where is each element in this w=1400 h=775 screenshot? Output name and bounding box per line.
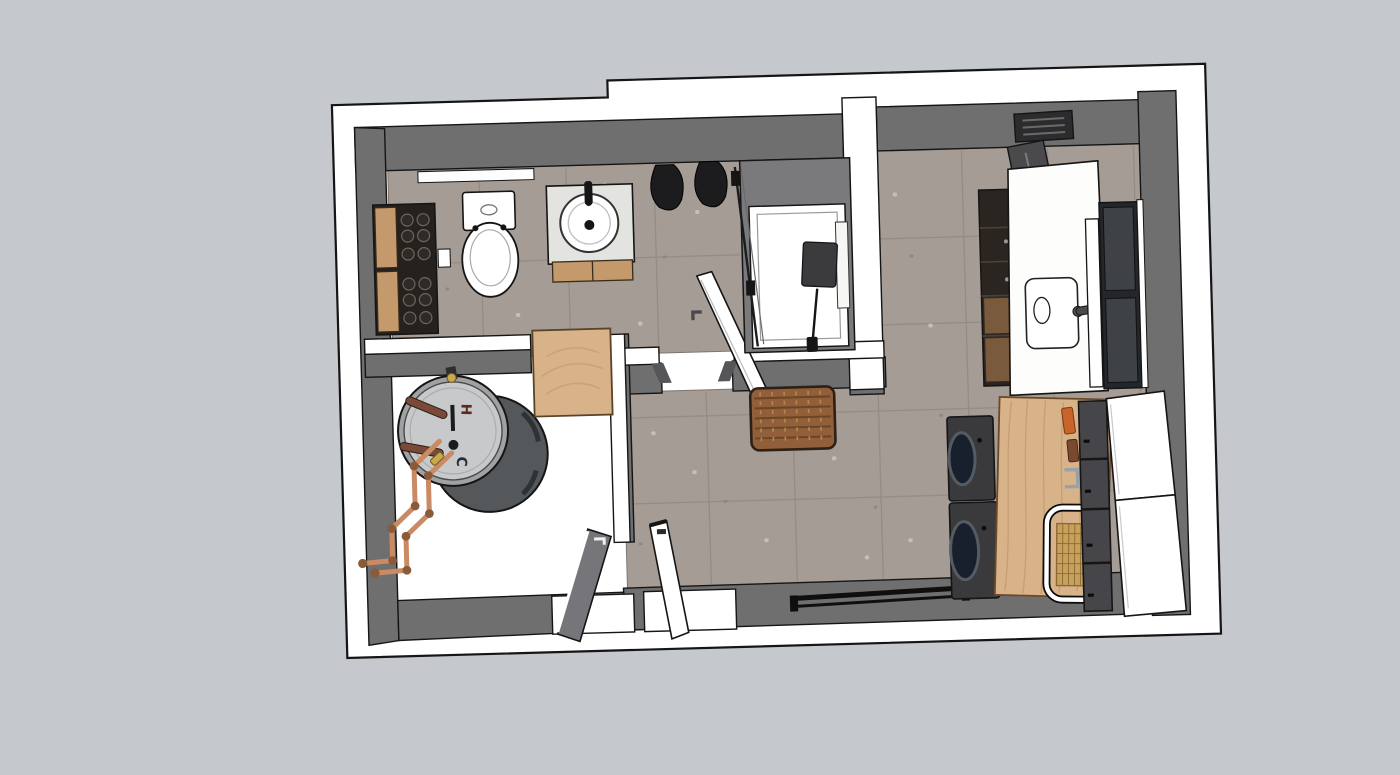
cabinet-wood-bin-1 <box>984 297 1013 334</box>
window-pane-bottom <box>1106 298 1138 383</box>
storage-door-bottom <box>377 271 400 332</box>
shower-enclosure <box>731 158 855 354</box>
wicker-basket <box>750 386 836 450</box>
entry-door-frame <box>644 589 737 632</box>
cold-label: C <box>453 456 469 466</box>
shower-handset <box>807 337 818 352</box>
cabinet-door-bottom <box>1115 495 1186 617</box>
window-pane-top <box>1103 207 1135 291</box>
storage-column <box>1078 401 1112 612</box>
shower-mixer <box>802 242 838 287</box>
glass-hinge-top <box>731 171 740 186</box>
toilet <box>460 191 519 298</box>
towel-storage-unit <box>373 203 439 335</box>
radiator-foot-left <box>790 595 798 611</box>
vanity-drawer-gap <box>592 261 593 281</box>
shower-niche <box>835 222 849 308</box>
laundry-sink <box>1025 277 1079 348</box>
center-pipe <box>452 405 453 431</box>
vanity-sink <box>546 180 635 282</box>
book-brown <box>1067 439 1079 462</box>
floorplan-viewport[interactable]: H C <box>0 0 1400 775</box>
vent-grille <box>1014 111 1074 143</box>
storage-door-top <box>375 207 398 268</box>
glass-hinge-mid <box>746 280 755 295</box>
hot-label: H <box>457 404 473 416</box>
cabinet-door-top <box>1106 391 1175 501</box>
mixer-plate <box>802 242 838 287</box>
wooden-step <box>532 328 612 416</box>
wooden-step-top <box>532 328 612 416</box>
entry-door-handle <box>657 529 666 534</box>
floorplan-render: H C <box>0 0 1400 775</box>
toilet-paper-holder <box>438 249 450 267</box>
dryer-door <box>948 432 975 485</box>
brass-fitting <box>447 373 456 382</box>
window <box>1085 200 1148 390</box>
washer-door <box>950 521 980 580</box>
laundry-top-wall-face <box>876 100 1143 151</box>
